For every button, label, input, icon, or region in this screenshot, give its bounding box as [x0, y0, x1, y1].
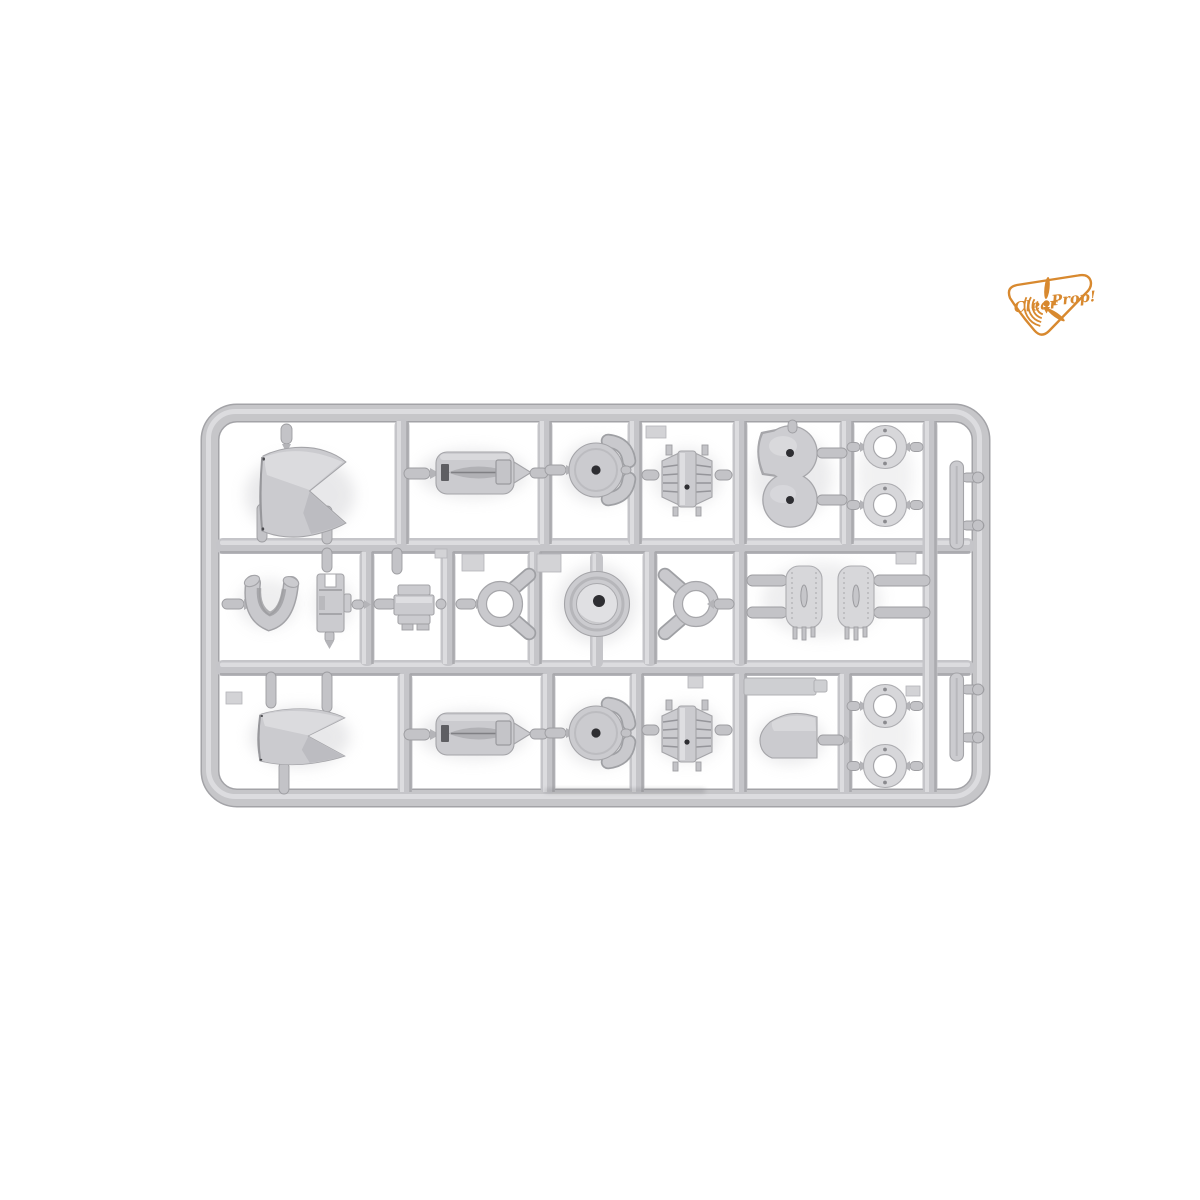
part-bulkhead-disc-top [545, 441, 631, 499]
sprue-photo: Clear Prop! [0, 0, 1200, 1200]
part-intake-ring-right [665, 575, 734, 633]
photo-canvas: Clear Prop! [0, 0, 1200, 1200]
brand-logo: Clear Prop! [1009, 275, 1097, 335]
part-cowl-ring-4 [847, 745, 923, 788]
part-engine-insert-bottom [404, 713, 548, 755]
part-equipment-box [374, 585, 446, 630]
part-intake-ring-left [456, 575, 529, 633]
part-bulkhead-disc-bottom [545, 704, 631, 762]
part-flat-strip [744, 678, 827, 695]
part-engine-insert-top [404, 452, 548, 494]
brand-word-prop: Prop! [1050, 288, 1097, 310]
part-cowl-front-face [565, 572, 630, 637]
seam-shadow [545, 790, 705, 793]
part-twin-hub-plate [757, 420, 847, 528]
